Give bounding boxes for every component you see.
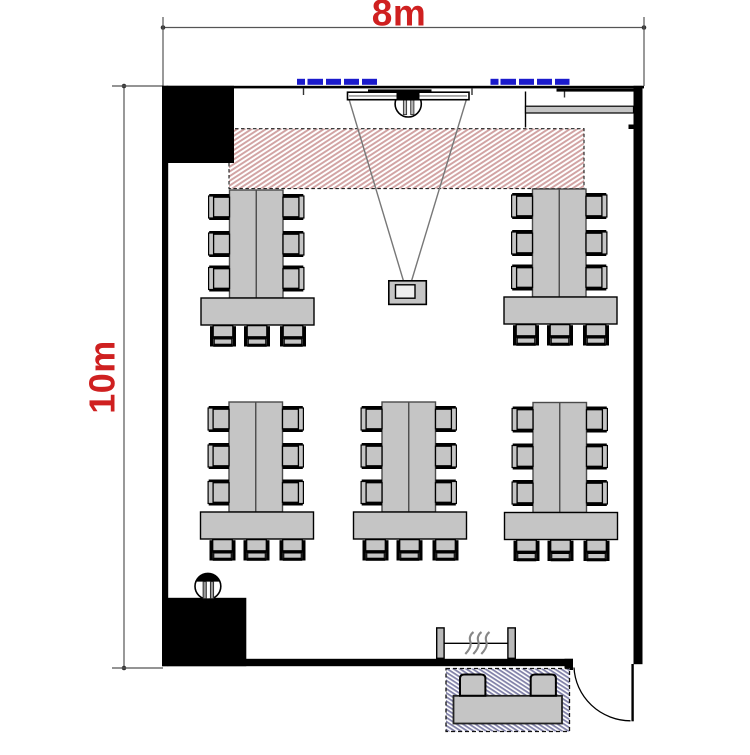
svg-text:10m: 10m	[82, 340, 123, 414]
svg-text:8m: 8m	[372, 0, 426, 34]
